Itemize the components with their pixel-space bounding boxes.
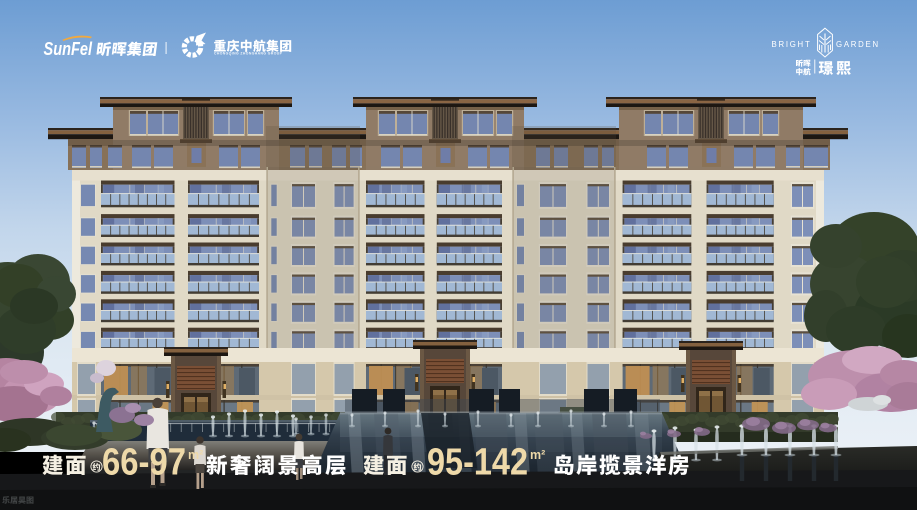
svg-text:SunFel: SunFel	[44, 38, 93, 59]
svg-text:m²: m²	[530, 448, 545, 462]
svg-text:66-97: 66-97	[102, 442, 186, 484]
svg-text:m²: m²	[188, 448, 203, 462]
svg-text:CHONGQING ZHONGHANG GROUP: CHONGQING ZHONGHANG GROUP	[214, 52, 283, 56]
svg-text:BRIGHT: BRIGHT	[772, 40, 812, 49]
svg-text:95-142: 95-142	[427, 442, 528, 484]
svg-text:GARDEN: GARDEN	[836, 40, 880, 49]
